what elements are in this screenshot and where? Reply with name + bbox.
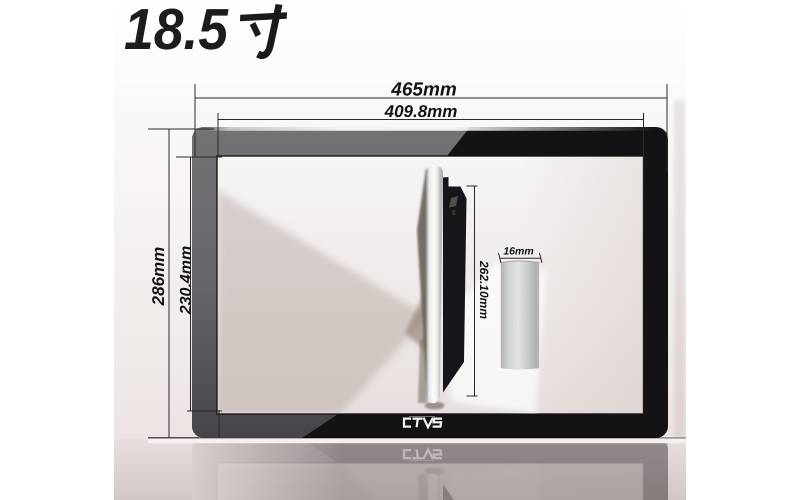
svg-text:230.4mm: 230.4mm: [178, 246, 195, 316]
svg-text:409.8mm: 409.8mm: [384, 102, 458, 121]
svg-text:262.10mm: 262.10mm: [477, 260, 491, 319]
svg-text:286mm: 286mm: [149, 247, 168, 307]
svg-text:18.5: 18.5: [124, 0, 229, 62]
svg-text:16mm: 16mm: [503, 246, 533, 258]
svg-text:465mm: 465mm: [390, 80, 457, 101]
